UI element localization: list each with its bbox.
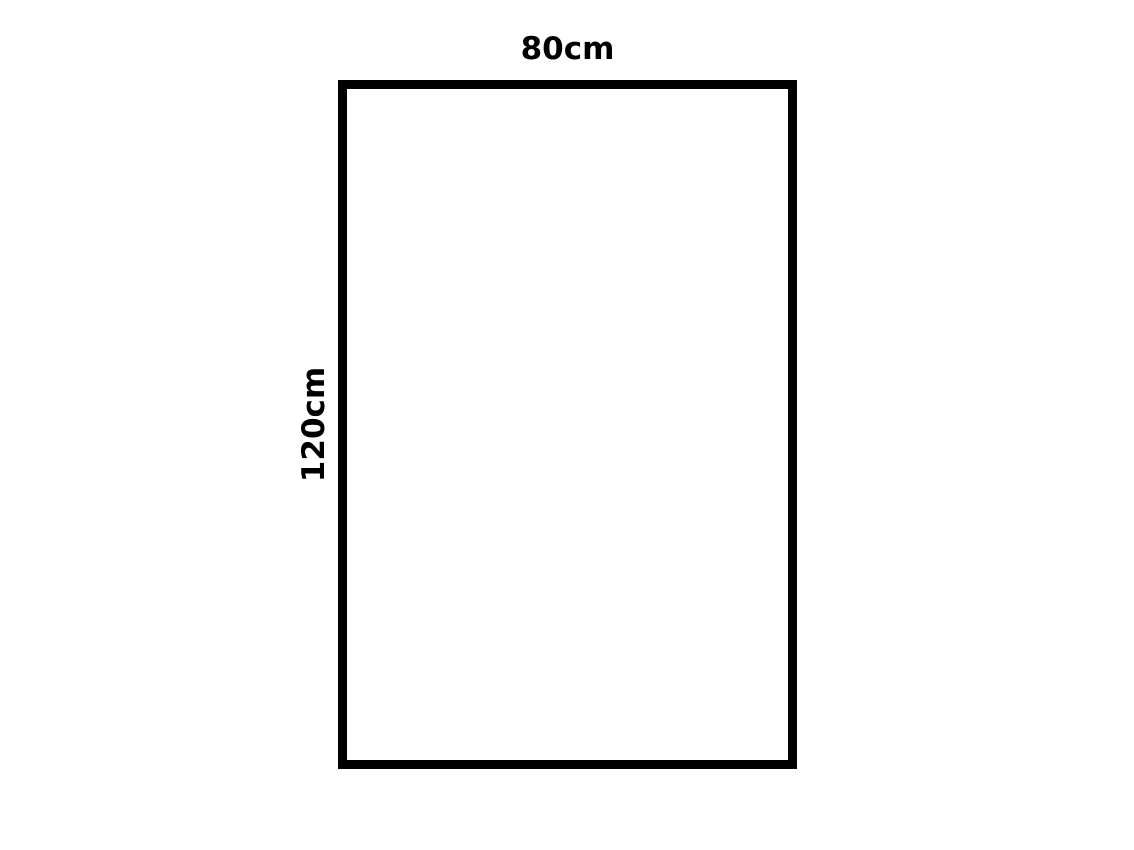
width-dimension-label: 80cm: [338, 34, 797, 65]
height-dimension-label: 120cm: [300, 367, 331, 482]
height-dimension-label-container: 120cm: [294, 80, 336, 769]
rectangle-shape: [338, 80, 797, 769]
diagram-canvas: 80cm 120cm: [0, 0, 1134, 850]
